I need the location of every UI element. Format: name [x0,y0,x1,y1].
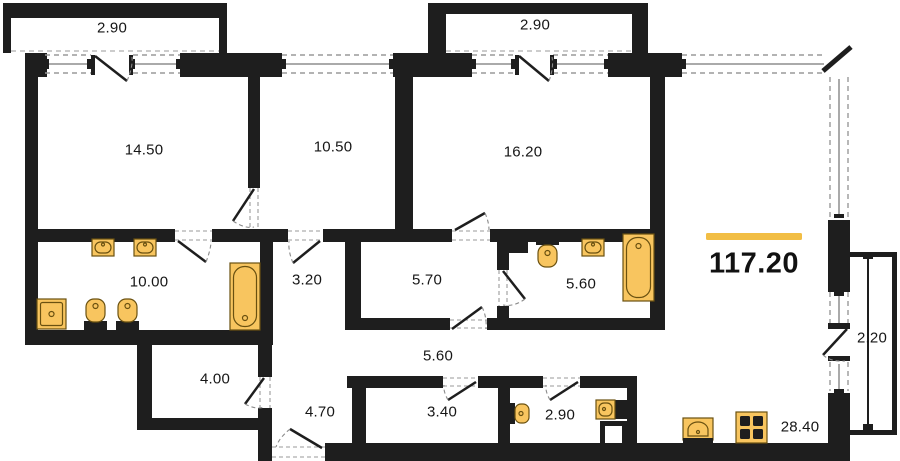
sink-icon [596,400,627,419]
area-label-room-5-70: 5.70 [412,272,442,289]
door-room-3-40 [443,378,478,400]
door-bathroom-5-60 [499,270,525,306]
area-label-room-10-50: 10.50 [314,139,353,156]
door-room-5-70 [450,307,487,329]
sink-icon [92,231,114,256]
sink-icon [582,231,604,256]
area-label-corridor-5-60: 5.60 [423,348,453,365]
area-label-balcony-top-left: 2.90 [97,20,127,37]
area-label-balcony-top-right: 2.90 [520,17,550,34]
area-label-balcony-2-20: 2.20 [857,330,887,347]
door-room-14-50 [233,188,258,228]
bathtub-icon [623,234,654,301]
door-room-16-20 [452,213,490,240]
bathtub-icon [230,263,260,330]
entrance-door [272,429,325,457]
floor-plan: 2.90 2.90 14.50 10.50 16.20 10.00 3.20 5… [0,0,900,461]
door-balcony-right [515,55,554,81]
toilet-icon [506,403,529,424]
area-label-wc-2-90: 2.90 [545,407,575,424]
door-room-4-00 [245,377,270,408]
sink-icon [134,231,156,256]
kitchen-sink-icon [683,418,713,443]
floor-plan-canvas [0,0,900,461]
area-label-room-14-50: 14.50 [125,142,164,159]
area-label-kitchen-28-40: 28.40 [781,419,820,436]
area-label-bathroom-10-00: 10.00 [130,274,169,291]
door-right-balcony [823,323,850,361]
door-bathroom-10-00 [175,231,212,262]
area-label-hall-3-20: 3.20 [292,272,322,289]
total-area-value: 117.20 [709,248,799,281]
door-room-10-50 [288,231,323,263]
shower-icon [37,299,66,329]
area-label-room-16-20: 16.20 [504,144,543,161]
area-label-room-4-00: 4.00 [200,371,230,388]
door-balcony-left [91,55,133,81]
area-label-hall-4-70: 4.70 [305,404,335,421]
total-area-accent-bar [706,233,802,240]
toilet-icon [84,299,107,332]
stove-icon [736,412,767,443]
area-label-room-3-40: 3.40 [427,404,457,421]
door-wc-2-90 [543,378,580,400]
area-label-bathroom-5-60: 5.60 [566,276,596,293]
toilet-icon [536,233,559,267]
bidet-icon [116,299,139,332]
